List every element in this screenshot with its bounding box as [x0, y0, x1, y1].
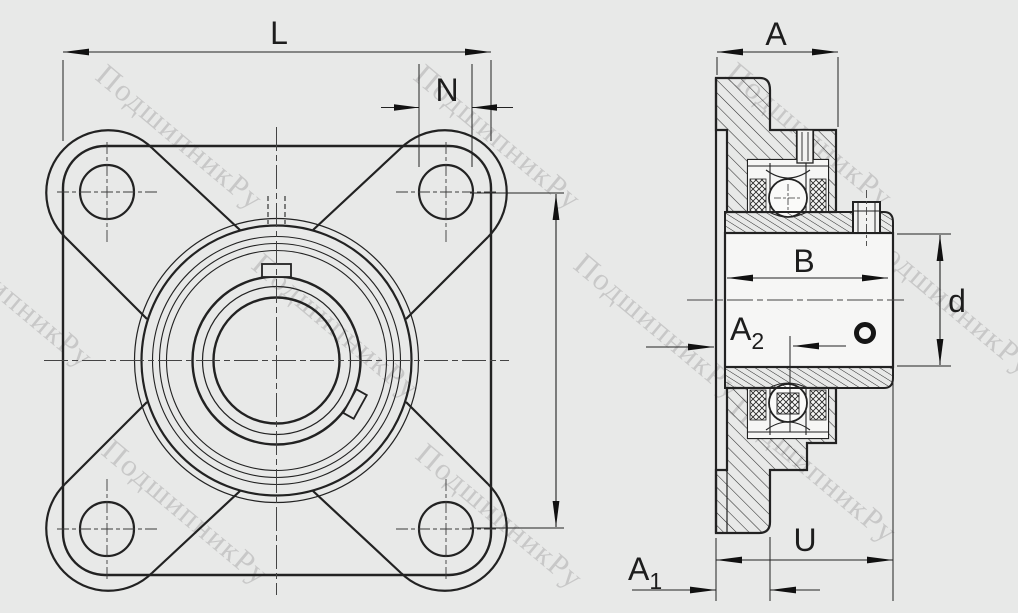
bearing-bottom [748, 383, 828, 438]
side-view [687, 78, 904, 533]
set-screw-tab-side [343, 389, 367, 418]
front-view [44, 127, 509, 595]
label-L: L [270, 15, 288, 51]
label-A: A [765, 16, 787, 52]
bearing-unit-drawing: L N A B d U A2 A1 [0, 0, 1018, 613]
seal-section [750, 390, 766, 420]
label-B: B [793, 243, 814, 279]
lube-hole [797, 130, 813, 163]
seal-section [810, 390, 826, 420]
label-N: N [435, 72, 458, 108]
seal-section [810, 179, 826, 212]
label-A1: A1 [628, 551, 662, 594]
front-center-lines [44, 127, 509, 595]
cage-section [777, 393, 799, 414]
seal-section [750, 179, 766, 212]
inner-ring-sleeve-bottom [725, 367, 893, 388]
label-d: d [948, 283, 966, 319]
screenshot-root: { "watermark": { "text": "ПодшипникРу", … [0, 0, 1018, 613]
technical-drawing-canvas: ПодшипникРу ПодшипникРу ПодшипникРу Подш… [0, 0, 1018, 613]
label-U: U [793, 522, 816, 558]
